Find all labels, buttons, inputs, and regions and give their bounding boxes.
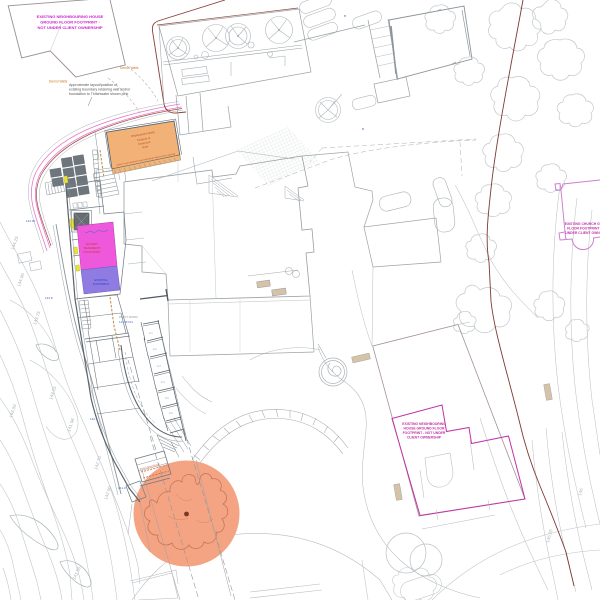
svg-text:existing boundary retaining wa: existing boundary retaining wall and/or <box>69 88 131 92</box>
svg-text:143.95 FFL: 143.95 FFL <box>119 320 134 324</box>
svg-text:EXISTING CHURCH GROU: EXISTING CHURCH GROU <box>565 222 600 226</box>
svg-text:UNDER CLIENT OWNERS: UNDER CLIENT OWNERS <box>565 231 600 235</box>
svg-text:EXISTING NEIGHBOURING: EXISTING NEIGHBOURING <box>402 422 446 426</box>
svg-text:144.05: 144.05 <box>26 219 36 223</box>
svg-text:Demol Walls: Demol Walls <box>49 80 68 84</box>
svg-text:GROUND FLOOR FOOTPRINT -: GROUND FLOOR FOOTPRINT - <box>40 20 100 25</box>
svg-text:141.9: 141.9 <box>118 486 126 490</box>
svg-text:FLOOR FOOTPRINT - N: FLOOR FOOTPRINT - N <box>567 227 600 231</box>
svg-text:143.8: 143.8 <box>45 296 53 300</box>
svg-text:FOOTPRINT: FOOTPRINT <box>93 282 109 286</box>
svg-text:HOUSE GROUND FLOOR: HOUSE GROUND FLOOR <box>404 427 445 431</box>
svg-text:B: B <box>362 127 364 131</box>
svg-text:foundation to Thitchwater show: foundation to Thitchwater shown pink <box>69 92 128 96</box>
svg-text:Demol Walls: Demol Walls <box>120 66 139 70</box>
svg-text:B: B <box>344 14 346 18</box>
svg-text:NOT UNDER CLIENT OWNERSHIP: NOT UNDER CLIENT OWNERSHIP <box>37 25 102 30</box>
svg-text:Approximate layout/position of: Approximate layout/position of <box>69 83 117 87</box>
svg-text:142.1: 142.1 <box>90 417 98 421</box>
svg-text:PLANT ROOM: PLANT ROOM <box>119 315 138 319</box>
svg-text:EXISTING NEIGHBOURING HOUSE: EXISTING NEIGHBOURING HOUSE <box>37 14 104 19</box>
svg-text:FOOTPRINT: FOOTPRINT <box>83 250 100 254</box>
svg-text:FOOTPRINT - NOT UNDER: FOOTPRINT - NOT UNDER <box>403 431 446 435</box>
svg-text:CLIENT OWNERSHIP: CLIENT OWNERSHIP <box>407 436 442 440</box>
